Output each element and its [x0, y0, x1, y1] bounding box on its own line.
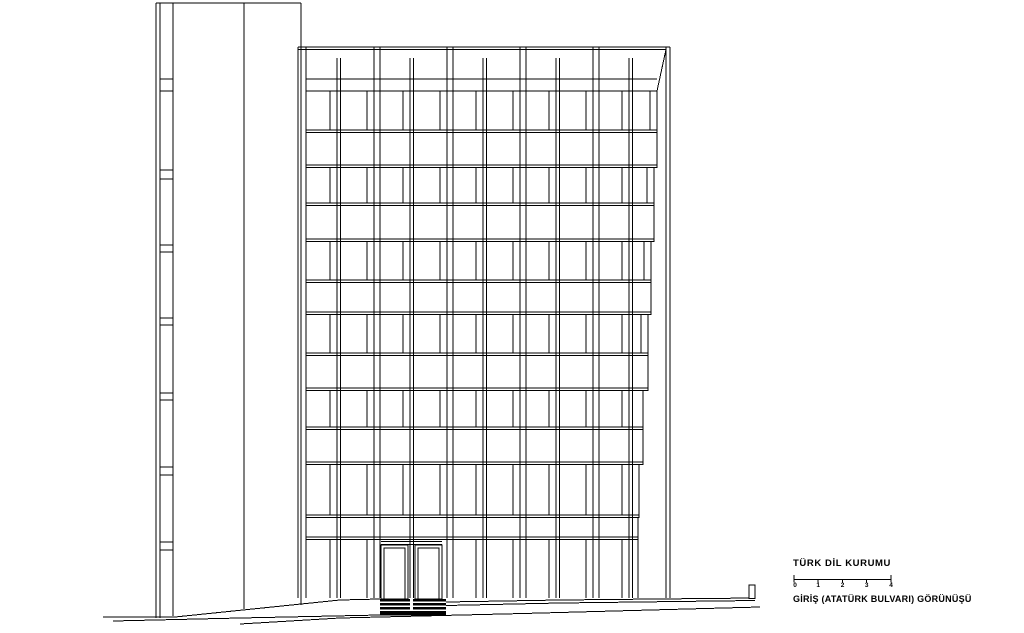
scale-label-0: 0: [793, 582, 797, 589]
scale-label-1: 1: [816, 582, 820, 589]
drawing-title: TÜRK DİL KURUMU: [793, 558, 972, 569]
drawing-caption: GİRİŞ (ATATÜRK BULVARI) GÖRÜNÜŞÜ: [793, 594, 972, 604]
service-tower: [156, 3, 301, 618]
entrance-steps: [380, 599, 446, 616]
elevation-sheet: TÜRK DİL KURUMU 0 1 2 3 4 GİRİŞ (ATATÜRK…: [0, 0, 1024, 633]
entrance-doors: [381, 542, 442, 600]
boundary-post: [749, 585, 755, 599]
title-block: TÜRK DİL KURUMU 0 1 2 3 4 GİRİŞ (ATATÜRK…: [793, 558, 972, 604]
building-elevation-drawing: [0, 0, 1024, 633]
scale-label-4: 4: [889, 582, 893, 589]
scale-bar: 0 1 2 3 4: [793, 574, 893, 591]
scale-label-2: 2: [841, 582, 845, 589]
facade-grid: [298, 47, 670, 598]
scale-label-3: 3: [865, 582, 869, 589]
